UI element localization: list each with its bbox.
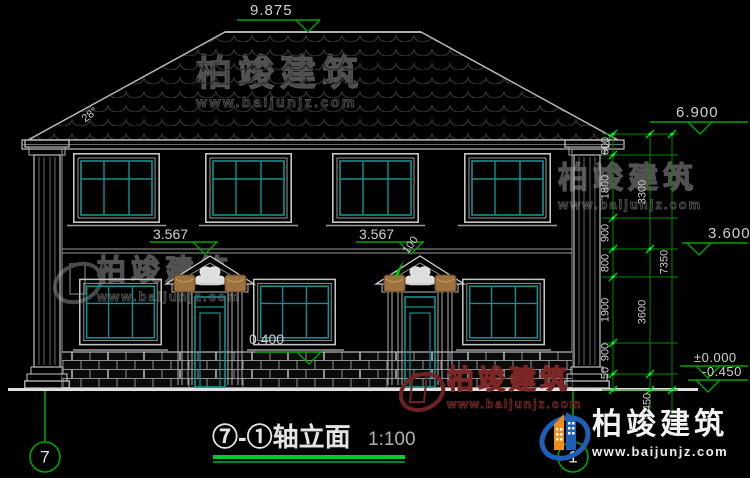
ridge-level-label: 9.875	[250, 3, 293, 18]
drawing-title: ⑦-①轴立面	[212, 424, 351, 450]
dim-900b: 900	[601, 343, 612, 361]
zero-level-label: ±0.000	[694, 351, 737, 364]
first-floor-windows	[73, 279, 551, 350]
dim-800: 800	[601, 254, 612, 272]
second-floor-windows	[67, 154, 557, 226]
title-underline-thin	[213, 461, 405, 463]
dim-900a: 900	[601, 224, 612, 242]
brand-name-text: 柏竣建筑	[592, 410, 728, 440]
dim-3300: 3300	[638, 180, 649, 204]
drawing-scale: 1:100	[368, 430, 416, 449]
pediment-left-level-label: 3.567	[153, 227, 188, 241]
title-underline-thick	[213, 455, 405, 459]
grade-level-label: -0.450	[702, 365, 742, 378]
dim-3600: 3600	[638, 300, 649, 324]
watermark-swoosh-red-icon	[396, 364, 448, 418]
cad-elevation-drawing: 柏竣建筑 www.baijunjz.com 柏竣建筑 www.baijunjz.…	[0, 0, 750, 478]
dim-1900: 1900	[601, 298, 612, 322]
dim-1800: 1800	[601, 175, 612, 199]
dim-7350: 7350	[660, 250, 671, 274]
eave-cornice	[22, 140, 624, 149]
dim-600: 600	[601, 137, 612, 155]
dim-50: 50	[601, 367, 612, 379]
axis-bubble-7: 7	[40, 449, 49, 466]
watermark-brand-text: 柏竣建筑	[447, 367, 583, 394]
brand-logo-bottom-right: 柏竣建筑 www.baijunjz.com	[592, 410, 728, 458]
brand-logo-icon	[538, 402, 592, 472]
hip-roof	[28, 32, 618, 140]
upper-level-label: 3.600	[708, 226, 750, 241]
eave-level-label: 6.900	[676, 105, 719, 120]
pilaster-left	[25, 140, 69, 388]
brand-url-text: www.baijunjz.com	[592, 445, 728, 458]
sill-level-label: 0.400	[249, 332, 284, 346]
pediment-right-level-label: 3.567	[359, 227, 394, 241]
